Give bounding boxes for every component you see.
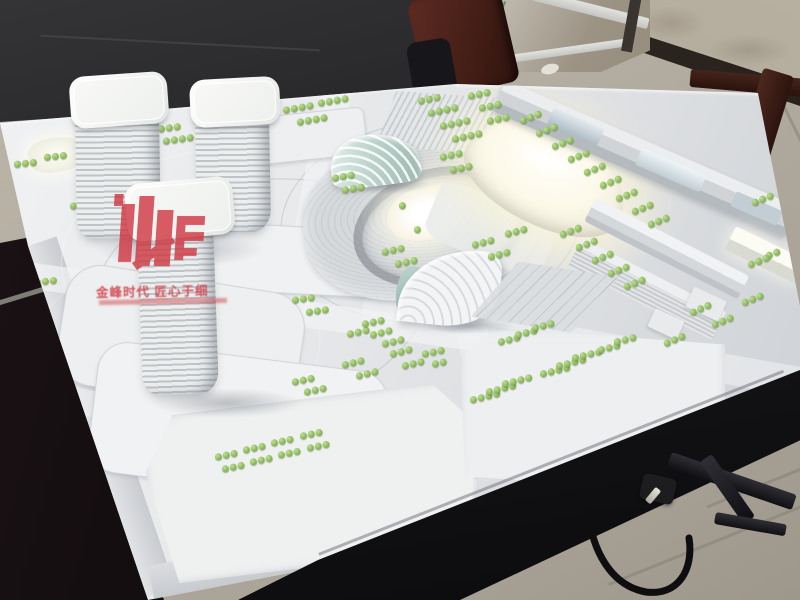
power-cable — [0, 0, 800, 600]
scene-photo: 金峰时代 匠心于细 — [0, 0, 800, 600]
